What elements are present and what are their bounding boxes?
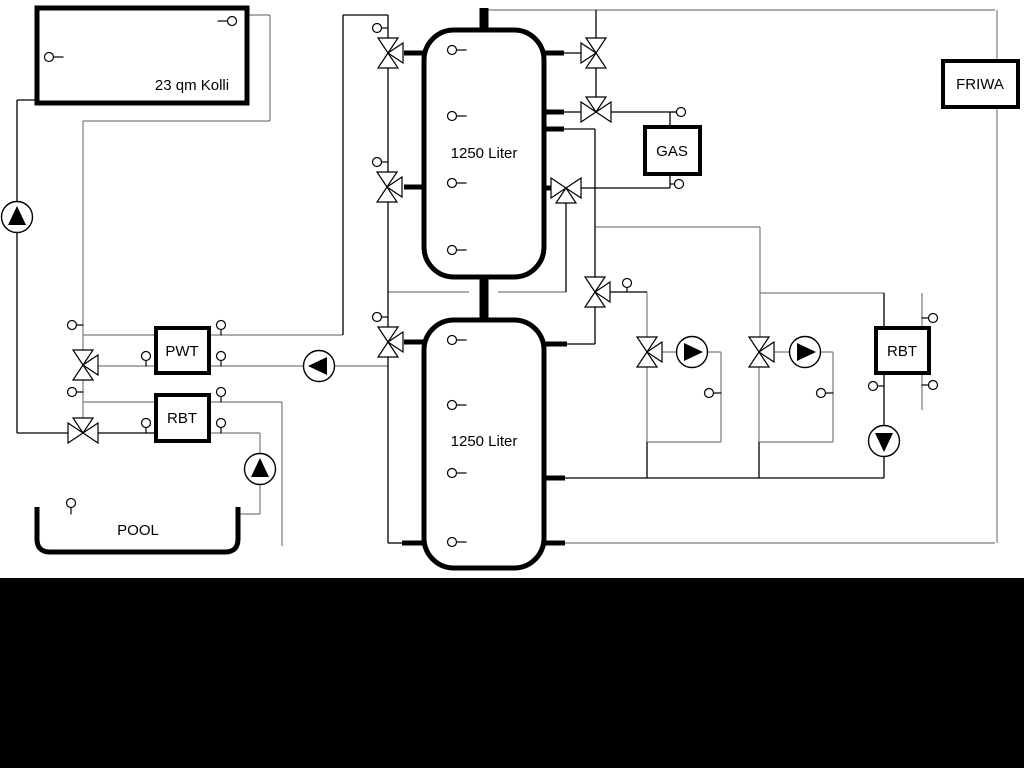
sensor-bulb [68,321,77,330]
sensor-bulb [68,388,77,397]
sensor-bulb [448,538,457,547]
sensor-bulb [448,179,457,188]
pump-icon-up[interactable] [245,454,276,485]
sensor-bulb [623,279,632,288]
sensor-bulb [373,158,382,167]
sensor-bulb [373,313,382,322]
buffer-tank-lower-label: 1250 Liter [451,433,518,450]
sensor-bulb [67,499,76,508]
rbt-left-box-label: RBT [167,410,197,427]
sensor-bulb [929,381,938,390]
pwt-box-label: PWT [165,343,198,360]
sensor-bulb [217,388,226,397]
sensor-bulb [705,389,714,398]
heating-schematic-canvas: 1250 Liter1250 Liter23 qm KolliPWTRBTGAS… [0,0,1024,768]
pump-icon-up[interactable] [2,202,33,233]
schematic-page: 1250 Liter1250 Liter23 qm KolliPWTRBTGAS… [0,0,1024,768]
pump-icon-right[interactable] [790,337,821,368]
sensor-bulb [217,321,226,330]
gas-box-label: GAS [656,143,688,160]
pump-icon-left[interactable] [304,351,335,382]
sensor-bulb [817,389,826,398]
buffer-tank-upper-label: 1250 Liter [451,145,518,162]
sensor-bulb [448,469,457,478]
sensor-bulb [677,108,686,117]
sensor-bulb [373,24,382,33]
pool-label: POOL [117,522,159,539]
pump-icon-down[interactable] [869,426,900,457]
sensor-bulb [448,112,457,121]
friwa-box-label: FRIWA [956,76,1004,93]
pump-icon-right[interactable] [677,337,708,368]
collector-box-label: 23 qm Kolli [155,77,229,94]
sensor-bulb [869,382,878,391]
rbt-right-box-label: RBT [887,343,917,360]
sensor-bulb [448,46,457,55]
sensor-bulb [448,336,457,345]
sensor-bulb [217,352,226,361]
sensor-bulb [448,401,457,410]
sensor-bulb [142,352,151,361]
sensor-bulb [929,314,938,323]
sensor-bulb [228,17,237,26]
bottom-black-bar [0,578,1024,768]
sensor-bulb [675,180,684,189]
sensor-bulb [217,419,226,428]
sensor-bulb [142,419,151,428]
sensor-bulb [45,53,54,62]
sensor-bulb [448,246,457,255]
